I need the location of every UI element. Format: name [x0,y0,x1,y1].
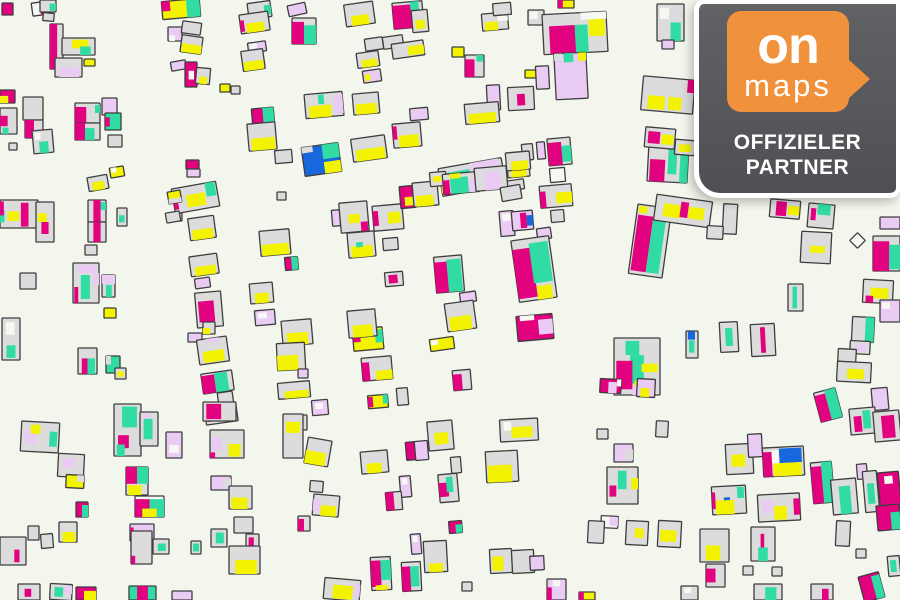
building [284,256,298,270]
building [656,421,669,438]
building [108,135,122,147]
building [433,255,464,293]
building [880,300,900,322]
building [858,572,885,600]
building [438,473,459,503]
building [187,169,200,177]
building [229,486,252,509]
building [211,476,231,490]
building [681,586,698,600]
building [188,215,217,240]
building [558,0,574,8]
building [344,1,376,27]
building [75,123,100,140]
building [754,584,782,600]
building [411,9,429,32]
building [462,582,472,591]
building [392,122,422,148]
building [9,143,17,150]
partner-label: OFFIZIELER PARTNER [699,131,896,180]
building [249,282,274,304]
building [449,520,463,533]
building [18,584,40,600]
building [352,92,380,115]
building [0,200,38,228]
building [873,236,900,271]
building [722,204,738,235]
building [547,579,566,600]
building [311,399,328,415]
building [186,160,199,169]
building [410,534,422,555]
building [465,55,484,77]
building [310,480,324,492]
building [109,166,125,178]
building [85,245,97,255]
building [769,199,800,220]
building [43,13,55,22]
building [189,253,220,277]
building [287,2,307,17]
building [153,539,169,554]
building [87,174,109,191]
building [542,11,608,54]
building [367,394,388,409]
building [347,231,376,258]
building [254,309,275,326]
building [364,37,383,51]
building [32,129,54,154]
building [20,421,60,453]
building [452,47,464,57]
logo-pointer-icon [848,59,870,99]
building [489,548,512,573]
building [772,567,782,576]
building [88,222,106,242]
building [747,434,762,458]
building [20,273,36,289]
building [356,51,380,69]
building [750,323,776,356]
building [55,58,82,77]
building [0,108,17,134]
building [0,90,15,103]
building [277,192,286,200]
building [625,520,648,545]
building [505,151,530,171]
building [850,233,866,249]
building [131,531,152,564]
building [657,4,684,41]
partner-line-1: OFFIZIELER [699,131,896,155]
building [73,263,99,303]
building [383,237,399,250]
building [423,540,448,572]
building [614,444,633,462]
building [180,35,203,55]
building [161,0,200,20]
building [836,361,871,383]
building [536,142,545,160]
building [195,67,210,84]
building [507,86,534,110]
building [172,591,192,600]
building [234,517,253,533]
building [579,592,595,600]
building [856,549,866,558]
building [539,184,573,209]
building [115,368,126,379]
building [641,76,696,114]
building [104,308,116,318]
building [707,226,724,240]
building [57,453,84,477]
building [535,66,549,90]
building [743,566,753,575]
building [140,412,158,446]
building [549,167,565,182]
building [247,122,277,151]
building [339,201,370,233]
building [811,584,833,600]
building [62,38,95,55]
building [66,475,85,489]
building [657,520,681,547]
building [831,478,859,515]
building [637,379,656,398]
building [239,11,270,34]
building [298,516,310,531]
building [662,40,674,49]
building [191,541,201,554]
building [396,388,408,406]
building [229,546,260,574]
building [181,21,201,36]
building [323,577,361,600]
building [493,2,512,16]
building [385,491,403,510]
building [800,231,832,264]
building [0,537,26,565]
building [274,149,292,163]
building [700,529,729,562]
building [360,450,389,474]
building [167,190,182,204]
building [301,143,342,177]
building [166,432,182,458]
building [711,485,746,515]
building [23,97,43,120]
building [686,331,698,358]
building [117,208,127,226]
building [194,277,210,289]
building [114,404,141,456]
map-screen: on maps OFFIZIELER PARTNER [0,0,900,600]
onmaps-logo: on maps [727,11,849,112]
building [2,318,20,360]
building [547,137,572,166]
building [76,587,96,600]
building [203,322,215,334]
building [607,467,638,504]
building [644,127,676,150]
building [444,300,477,332]
building [880,217,900,229]
building [76,502,88,517]
building [788,284,803,311]
building [500,184,522,201]
building [259,229,291,257]
building [706,564,725,587]
building [211,529,227,547]
building [849,407,877,435]
building [75,103,100,123]
building [351,135,388,163]
building [276,342,305,370]
building [28,526,39,540]
building [283,414,303,458]
logo-text-on: on [757,23,819,70]
building [835,521,850,547]
building [587,521,604,544]
building [551,209,565,222]
building [241,49,266,72]
building [751,527,775,561]
building [36,202,54,242]
building [50,583,73,600]
building [59,522,77,542]
building [361,356,393,382]
building [511,210,534,231]
building [347,309,377,338]
building [410,107,429,121]
building [597,429,608,439]
building [129,586,156,600]
building [277,381,310,400]
building [511,236,557,303]
building [84,59,95,66]
building [170,60,186,71]
building [362,69,381,83]
building [499,418,538,442]
partner-line-2: PARTNER [699,156,896,180]
building [757,493,800,522]
building [414,440,429,460]
partner-badge: on maps OFFIZIELER PARTNER [694,0,900,198]
building [372,204,404,232]
building [105,113,121,130]
building [370,556,392,590]
building [165,211,181,223]
building [719,322,739,353]
building [762,446,804,477]
building [210,430,244,458]
building [464,102,500,125]
building [78,348,97,374]
building [231,86,240,94]
building [220,84,230,92]
building [2,3,13,15]
building [427,420,454,451]
building [813,388,842,423]
building [168,27,182,41]
building [196,336,229,365]
building [88,200,106,222]
building [312,494,340,517]
building [40,0,56,12]
building [450,457,461,474]
building [554,52,588,100]
building [887,556,900,577]
building [304,91,344,118]
building [201,370,234,394]
building [485,450,519,483]
building [102,275,115,297]
logo-text-maps: maps [744,70,832,103]
building [674,139,695,156]
building [135,496,164,517]
building [452,369,472,390]
building [304,437,332,467]
building [298,369,308,378]
building [384,271,403,287]
building [429,336,454,351]
building [530,556,545,571]
building [600,378,622,393]
building [807,203,835,229]
building [401,562,421,592]
building [851,316,874,342]
building [516,313,554,341]
building [292,18,316,44]
building [126,467,148,495]
building [40,534,53,549]
building [873,410,900,442]
building [203,402,236,421]
building [876,504,900,531]
